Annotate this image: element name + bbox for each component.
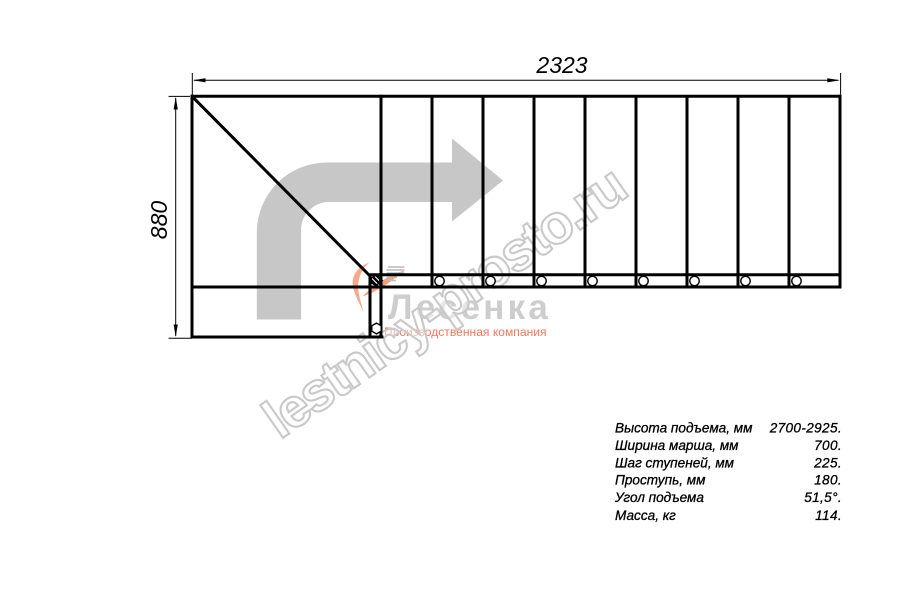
svg-text:880: 880	[146, 201, 172, 240]
svg-text:Ширина марша, мм: Ширина марша, мм	[615, 438, 739, 453]
svg-text:180.: 180.	[814, 473, 842, 488]
svg-text:Угол подъема: Угол подъема	[614, 490, 704, 505]
svg-text:Шаг ступеней, мм: Шаг ступеней, мм	[615, 455, 735, 470]
svg-text:Проступь, мм: Проступь, мм	[615, 473, 706, 488]
svg-text:225.: 225.	[813, 455, 842, 470]
svg-text:2700-2925.: 2700-2925.	[769, 421, 842, 436]
svg-text:51,5°.: 51,5°.	[804, 490, 842, 505]
svg-text:Высота подъема, мм: Высота подъема, мм	[615, 421, 753, 436]
svg-text:Масса, кг: Масса, кг	[615, 508, 676, 523]
svg-text:114.: 114.	[815, 508, 842, 523]
svg-text:2323: 2323	[535, 52, 587, 78]
svg-text:700.: 700.	[814, 438, 842, 453]
